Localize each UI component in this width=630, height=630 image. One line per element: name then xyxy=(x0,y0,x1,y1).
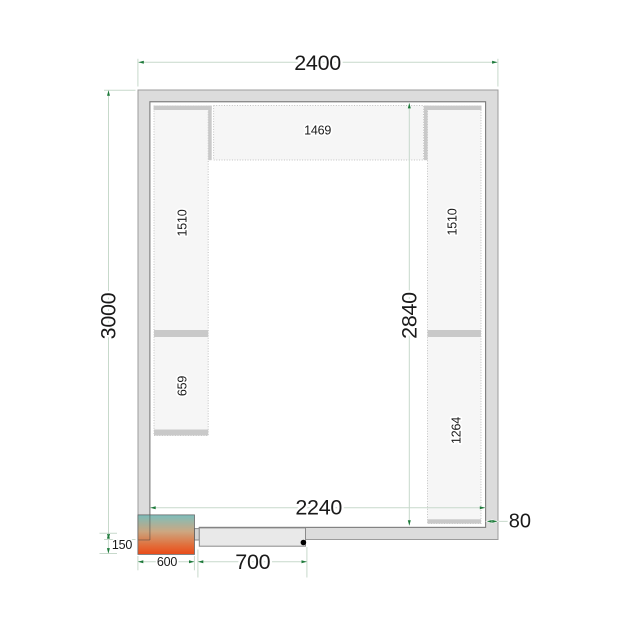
svg-text:150: 150 xyxy=(112,538,133,552)
svg-text:1510: 1510 xyxy=(176,209,190,236)
svg-text:1469: 1469 xyxy=(304,123,331,137)
svg-text:2240: 2240 xyxy=(295,496,342,520)
svg-text:1510: 1510 xyxy=(445,208,459,235)
svg-text:600: 600 xyxy=(157,555,178,569)
svg-text:3000: 3000 xyxy=(97,292,121,339)
svg-text:700: 700 xyxy=(235,550,270,574)
svg-text:1264: 1264 xyxy=(450,417,464,444)
svg-text:80: 80 xyxy=(509,511,531,533)
svg-text:2840: 2840 xyxy=(397,292,421,339)
svg-text:659: 659 xyxy=(176,376,190,397)
svg-text:2400: 2400 xyxy=(294,51,341,75)
